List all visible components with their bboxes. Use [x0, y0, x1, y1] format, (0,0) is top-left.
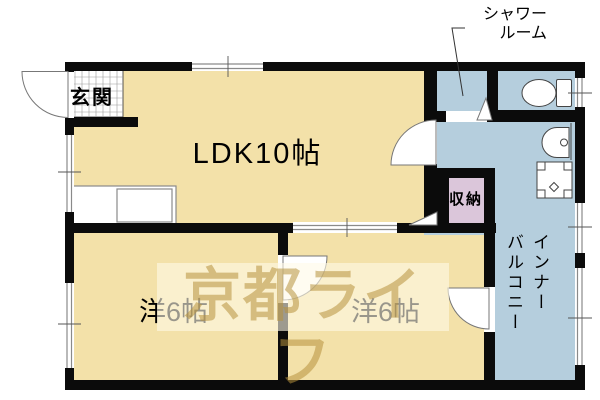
inner-balcony-label: インナー バルコニー: [500, 233, 552, 383]
kitchen-sink-icon: [117, 189, 172, 222]
watermark: 京都ライフ: [157, 263, 449, 331]
ldk-label: LDK10帖: [145, 130, 370, 172]
toilet-icon: [522, 80, 572, 107]
kitchen-counter-icon: [70, 186, 176, 226]
storage-label: 収納: [442, 188, 490, 209]
floorplan: 玄関 LDK10帖 シャワー ルーム 収納 洋6帖 洋6帖 インナー バルコニー…: [0, 0, 600, 400]
shower-floor: [430, 66, 490, 116]
washing-machine-pan-icon: [537, 162, 572, 198]
shower-room-label: シャワー ルーム: [452, 5, 547, 43]
entrance-door-arc: [22, 72, 68, 118]
entrance-label: 玄関: [70, 81, 122, 110]
